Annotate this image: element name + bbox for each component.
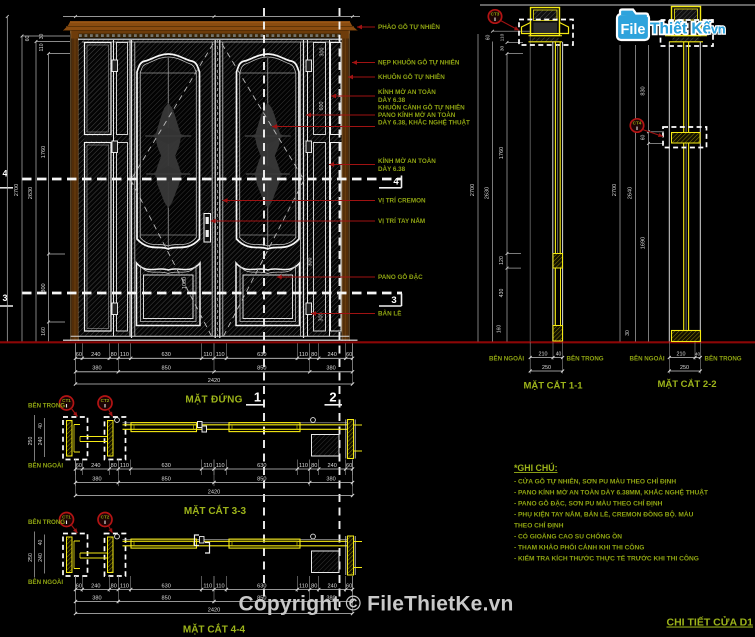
svg-text:2: 2 — [329, 390, 336, 405]
svg-text:630: 630 — [257, 352, 266, 358]
svg-text:850: 850 — [257, 366, 266, 372]
svg-text:1760: 1760 — [41, 146, 47, 158]
svg-text:2630: 2630 — [485, 187, 491, 199]
svg-text:BÊN NGOÀI: BÊN NGOÀI — [489, 355, 524, 363]
svg-text:*GHI CHÚ:: *GHI CHÚ: — [514, 462, 558, 473]
svg-text:BÊN TRONG: BÊN TRONG — [705, 355, 742, 363]
svg-text:60: 60 — [25, 36, 31, 42]
svg-text:120: 120 — [499, 256, 505, 265]
svg-text:CT4: CT4 — [633, 121, 642, 126]
svg-text:110: 110 — [39, 43, 45, 51]
svg-text:2640: 2640 — [628, 187, 634, 199]
svg-text:80: 80 — [111, 352, 117, 358]
svg-text:Thiết Kế: Thiết Kế — [650, 21, 712, 38]
svg-text:250: 250 — [28, 553, 34, 562]
svg-text:DÀY 6.38, KHẮC NGHỆ THUẬT: DÀY 6.38, KHẮC NGHỆ THUẬT — [378, 118, 470, 127]
svg-text:600: 600 — [319, 102, 325, 111]
svg-text:BÊN NGOÀI: BÊN NGOÀI — [28, 462, 63, 470]
svg-text:110: 110 — [299, 463, 308, 469]
svg-text:40: 40 — [695, 351, 701, 357]
svg-text:380: 380 — [92, 595, 101, 601]
svg-text:2420: 2420 — [208, 378, 220, 384]
svg-text:110: 110 — [120, 583, 129, 589]
svg-text:850: 850 — [161, 595, 170, 601]
svg-text:630: 630 — [257, 463, 266, 469]
svg-text:CHI TIẾT CỬA D1: CHI TIẾT CỬA D1 — [667, 616, 754, 629]
svg-text:2630: 2630 — [28, 187, 34, 199]
svg-text:PANO KÍNH MỜ AN TOÀN: PANO KÍNH MỜ AN TOÀN — [378, 110, 456, 119]
svg-text:VỊ TRÍ TAY NẮM: VỊ TRÍ TAY NẮM — [378, 216, 425, 225]
svg-text:830: 830 — [641, 86, 647, 95]
svg-text:40: 40 — [38, 540, 44, 546]
svg-text:850: 850 — [257, 476, 266, 482]
svg-text:NẸP KHUÔN GỖ TỰ NHIÊN: NẸP KHUÔN GỖ TỰ NHIÊN — [378, 58, 460, 67]
svg-text:2700: 2700 — [470, 184, 476, 196]
svg-text:240: 240 — [91, 583, 100, 589]
svg-text:240: 240 — [38, 437, 44, 446]
svg-text:PANO GỖ ĐẶC: PANO GỖ ĐẶC — [378, 272, 423, 281]
svg-text:60: 60 — [76, 352, 82, 358]
svg-text:60: 60 — [346, 352, 352, 358]
svg-text:KHUÔN CÁNH GỖ TỰ NHIÊN: KHUÔN CÁNH GỖ TỰ NHIÊN — [378, 103, 465, 112]
svg-text:2420: 2420 — [208, 607, 220, 613]
svg-text:850: 850 — [161, 366, 170, 372]
svg-text:BÊN NGOÀI: BÊN NGOÀI — [28, 578, 63, 586]
svg-text:300: 300 — [320, 48, 326, 57]
svg-text:80: 80 — [111, 463, 117, 469]
svg-text:MẶT CẮT 1-1: MẶT CẮT 1-1 — [523, 381, 583, 392]
svg-text:30: 30 — [500, 46, 506, 52]
svg-text:80: 80 — [311, 352, 317, 358]
svg-text:110: 110 — [299, 583, 308, 589]
svg-text:MẶT ĐỨNG: MẶT ĐỨNG — [185, 393, 242, 406]
svg-text:800: 800 — [41, 283, 47, 292]
svg-text:80: 80 — [311, 583, 317, 589]
svg-text:60: 60 — [346, 583, 352, 589]
svg-text:30: 30 — [625, 330, 631, 336]
svg-text:80: 80 — [111, 583, 117, 589]
svg-text:CT2: CT2 — [101, 398, 110, 403]
svg-text:60: 60 — [346, 463, 352, 469]
svg-text:2700: 2700 — [612, 184, 618, 196]
svg-text:VỊ TRÍ CREMON: VỊ TRÍ CREMON — [378, 196, 426, 205]
svg-text:30: 30 — [39, 34, 45, 40]
svg-text:BÊN NGOÀI: BÊN NGOÀI — [630, 355, 665, 363]
svg-text:4: 4 — [2, 169, 7, 179]
svg-text:630: 630 — [161, 463, 170, 469]
svg-text:630: 630 — [257, 583, 266, 589]
svg-text:430: 430 — [499, 289, 505, 298]
svg-text:4: 4 — [393, 177, 399, 188]
svg-text:110: 110 — [216, 352, 225, 358]
svg-text:300: 300 — [308, 258, 314, 267]
svg-text:1000: 1000 — [182, 277, 188, 289]
svg-text:- CỬA GỖ TỰ NHIÊN, SƠN PU MÀU: - CỬA GỖ TỰ NHIÊN, SƠN PU MÀU THEO CHỈ Đ… — [514, 477, 676, 486]
svg-text:KÍNH MỜ AN TOÀN: KÍNH MỜ AN TOÀN — [378, 87, 436, 96]
svg-text:110: 110 — [203, 463, 212, 469]
svg-text:KHUÔN GỖ TỰ NHIÊN: KHUÔN GỖ TỰ NHIÊN — [378, 72, 445, 81]
svg-text:250: 250 — [28, 437, 34, 446]
svg-text:160: 160 — [497, 325, 503, 334]
svg-text:- PANO GỖ ĐẶC, SƠN PU MÀU THEO: - PANO GỖ ĐẶC, SƠN PU MÀU THEO CHỈ ĐỊNH — [514, 499, 663, 508]
svg-text:KÍNH MỜ AN TOÀN: KÍNH MỜ AN TOÀN — [378, 156, 436, 165]
svg-text:CT2: CT2 — [101, 515, 110, 520]
svg-text:850: 850 — [161, 476, 170, 482]
svg-text:BÊN TRONG: BÊN TRONG — [28, 402, 65, 410]
svg-text:PHÀO GỖ TỰ NHIÊN: PHÀO GỖ TỰ NHIÊN — [378, 22, 440, 31]
svg-text:1690: 1690 — [641, 237, 647, 249]
svg-text:File: File — [621, 22, 646, 38]
svg-text:380: 380 — [92, 366, 101, 372]
svg-text:380: 380 — [326, 476, 335, 482]
svg-text:MẶT CẮT 2-2: MẶT CẮT 2-2 — [657, 379, 716, 390]
svg-text:CT3: CT3 — [491, 12, 500, 17]
svg-text:DÀY 6.38: DÀY 6.38 — [378, 95, 406, 104]
svg-text:MẶT CẮT 4-4: MẶT CẮT 4-4 — [183, 623, 246, 636]
svg-text:60: 60 — [76, 583, 82, 589]
svg-text:110: 110 — [203, 583, 212, 589]
svg-text:.vn: .vn — [708, 23, 726, 37]
svg-text:1: 1 — [254, 390, 261, 405]
svg-text:110: 110 — [299, 352, 308, 358]
svg-text:2420: 2420 — [208, 489, 220, 495]
svg-text:380: 380 — [326, 366, 335, 372]
svg-text:BÊN TRONG: BÊN TRONG — [28, 518, 65, 526]
svg-text:240: 240 — [91, 463, 100, 469]
svg-text:160: 160 — [41, 327, 47, 336]
svg-text:DÀY 6.38: DÀY 6.38 — [378, 164, 406, 173]
svg-text:3: 3 — [391, 295, 396, 306]
svg-text:60: 60 — [76, 463, 82, 469]
svg-text:110: 110 — [120, 463, 129, 469]
svg-text:1760: 1760 — [499, 147, 505, 159]
svg-text:THEO CHỈ ĐỊNH: THEO CHỈ ĐỊNH — [514, 521, 564, 530]
svg-text:240: 240 — [91, 352, 100, 358]
svg-text:110: 110 — [203, 352, 212, 358]
svg-text:630: 630 — [161, 583, 170, 589]
svg-text:240: 240 — [328, 583, 337, 589]
svg-text:630: 630 — [161, 352, 170, 358]
svg-text:60: 60 — [641, 135, 647, 141]
svg-text:250: 250 — [680, 365, 689, 371]
svg-text:240: 240 — [328, 463, 337, 469]
svg-text:250: 250 — [542, 365, 551, 371]
svg-text:40: 40 — [556, 351, 562, 357]
svg-text:110: 110 — [120, 352, 129, 358]
svg-text:3: 3 — [2, 293, 7, 303]
svg-text:240: 240 — [328, 352, 337, 358]
svg-text:110: 110 — [500, 33, 506, 41]
svg-text:110: 110 — [216, 583, 225, 589]
svg-text:60: 60 — [486, 35, 492, 41]
svg-text:80: 80 — [311, 463, 317, 469]
svg-text:110: 110 — [216, 463, 225, 469]
svg-text:240: 240 — [38, 553, 44, 562]
svg-text:- PANO KÍNH MỜ AN TOÀN DÀY 6.3: - PANO KÍNH MỜ AN TOÀN DÀY 6.38MM, KHẮC … — [514, 488, 708, 497]
svg-text:2700: 2700 — [14, 184, 20, 196]
svg-text:380: 380 — [92, 476, 101, 482]
svg-text:BÊN TRONG: BÊN TRONG — [567, 355, 604, 363]
svg-text:Copyright © FileThietKe.vn: Copyright © FileThietKe.vn — [238, 593, 513, 616]
svg-text:MẶT CẮT 3-3: MẶT CẮT 3-3 — [184, 504, 247, 517]
svg-text:210: 210 — [539, 351, 548, 357]
svg-text:40: 40 — [38, 423, 44, 429]
svg-text:210: 210 — [677, 351, 686, 357]
